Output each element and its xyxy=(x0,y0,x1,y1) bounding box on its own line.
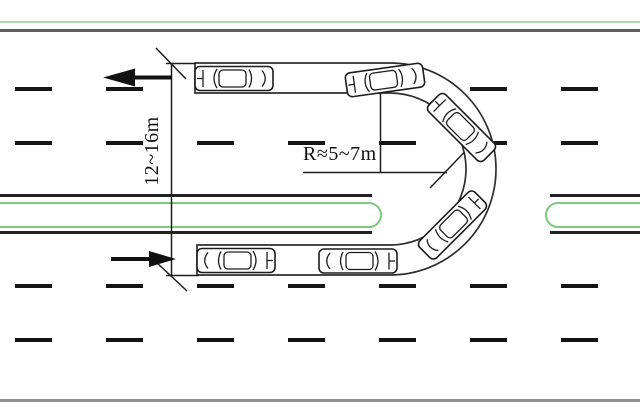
car-bottom-mid xyxy=(319,249,397,273)
diagram-linework xyxy=(0,0,640,407)
u-turn-diagram: 12~16m R≈5~7m xyxy=(0,0,640,407)
turn-width-label: 12~16m xyxy=(141,98,163,204)
westbound-arrow-icon xyxy=(103,69,172,87)
car-bottom-start xyxy=(197,249,275,273)
car-top-straight xyxy=(195,67,273,91)
turn-radius-label: R≈5~7m xyxy=(303,143,377,165)
eastbound-arrow-icon xyxy=(111,251,176,267)
